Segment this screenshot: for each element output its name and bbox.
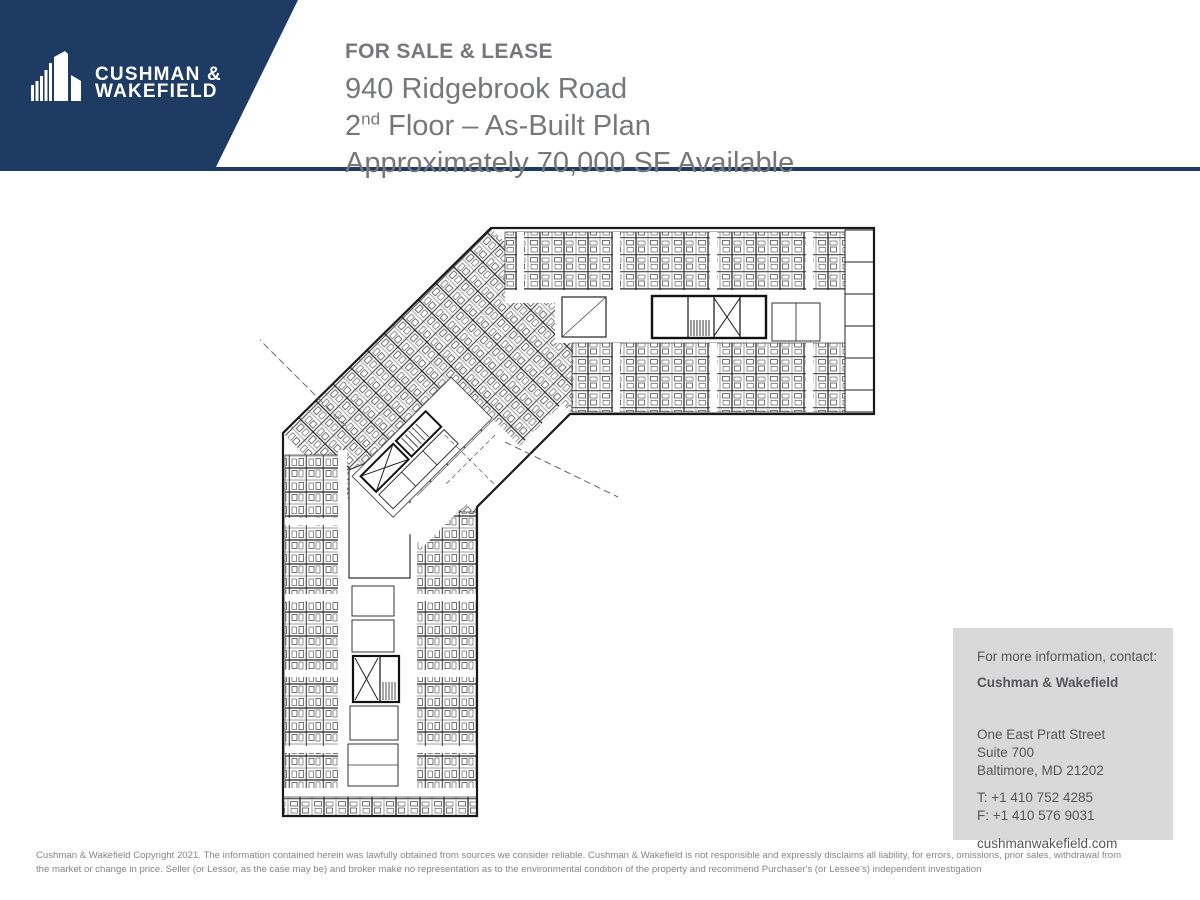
west-hall bbox=[338, 450, 347, 790]
cw-building-icon bbox=[31, 47, 91, 103]
disclaimer-line2: the market or change in price. Seller (o… bbox=[36, 863, 1186, 877]
contact-address-street: One East Pratt Street bbox=[977, 726, 1173, 744]
north-wing-cubicles-bottom bbox=[572, 343, 845, 412]
contact-fax: F: +1 410 576 9031 bbox=[977, 807, 1173, 825]
north-wing-cubicles-top bbox=[505, 232, 845, 290]
contact-address-city: Baltimore, MD 21202 bbox=[977, 762, 1173, 780]
availability-line: Approximately 70,000 SF Available bbox=[345, 145, 794, 182]
floor-number: 2 bbox=[345, 110, 361, 142]
east-perimeter-offices bbox=[845, 230, 874, 412]
contact-phone: T: +1 410 752 4285 bbox=[977, 789, 1173, 807]
contact-box: For more information, contact: Cushman &… bbox=[953, 628, 1173, 840]
floor-plan bbox=[260, 215, 900, 845]
room bbox=[352, 586, 394, 616]
contact-intro: For more information, contact: bbox=[977, 648, 1173, 666]
room bbox=[350, 706, 398, 740]
south-core bbox=[353, 656, 399, 702]
south-room-row bbox=[283, 797, 477, 816]
contact-address-suite: Suite 700 bbox=[977, 744, 1173, 762]
floor-plan-interior bbox=[283, 228, 874, 816]
sale-lease-label: FOR SALE & LEASE bbox=[345, 40, 794, 64]
south-corridor bbox=[283, 788, 477, 797]
contact-company: Cushman & Wakefield bbox=[977, 674, 1173, 692]
logo-line2: WAKEFIELD bbox=[95, 83, 222, 100]
room-east-of-core bbox=[772, 303, 820, 341]
floor-title: 2nd Floor – As-Built Plan bbox=[345, 108, 794, 145]
north-core bbox=[652, 296, 766, 338]
south-wing-cubicles bbox=[415, 512, 477, 814]
floor-ordinal: nd bbox=[361, 109, 380, 128]
property-address: 940 Ridgebrook Road bbox=[345, 71, 794, 108]
flyer-header: FOR SALE & LEASE 940 Ridgebrook Road 2nd… bbox=[345, 40, 794, 182]
room bbox=[352, 620, 394, 652]
west-wing-cubicles bbox=[285, 455, 345, 814]
lobby-box bbox=[562, 297, 606, 337]
brand-banner: CUSHMAN & WAKEFIELD bbox=[0, 0, 300, 167]
legal-disclaimer: Cushman & Wakefield Copyright 2021. The … bbox=[36, 849, 1186, 876]
disclaimer-line1: Cushman & Wakefield Copyright 2021. The … bbox=[36, 849, 1186, 863]
brand-logo-text: CUSHMAN & WAKEFIELD bbox=[95, 66, 222, 100]
floor-title-rest: Floor – As-Built Plan bbox=[380, 110, 651, 142]
